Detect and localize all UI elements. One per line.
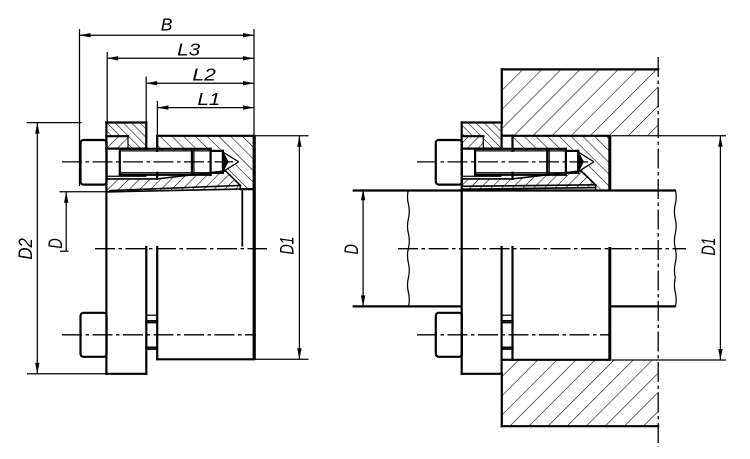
svg-text:D2: D2: [16, 238, 37, 260]
svg-text:D: D: [46, 238, 67, 249]
svg-text:D1: D1: [699, 238, 720, 256]
svg-text:D1: D1: [277, 237, 298, 255]
svg-text:B: B: [161, 14, 173, 34]
svg-text:L1: L1: [197, 89, 220, 109]
svg-text:D: D: [342, 244, 363, 255]
svg-text:L2: L2: [192, 65, 216, 85]
svg-text:L3: L3: [177, 40, 200, 60]
